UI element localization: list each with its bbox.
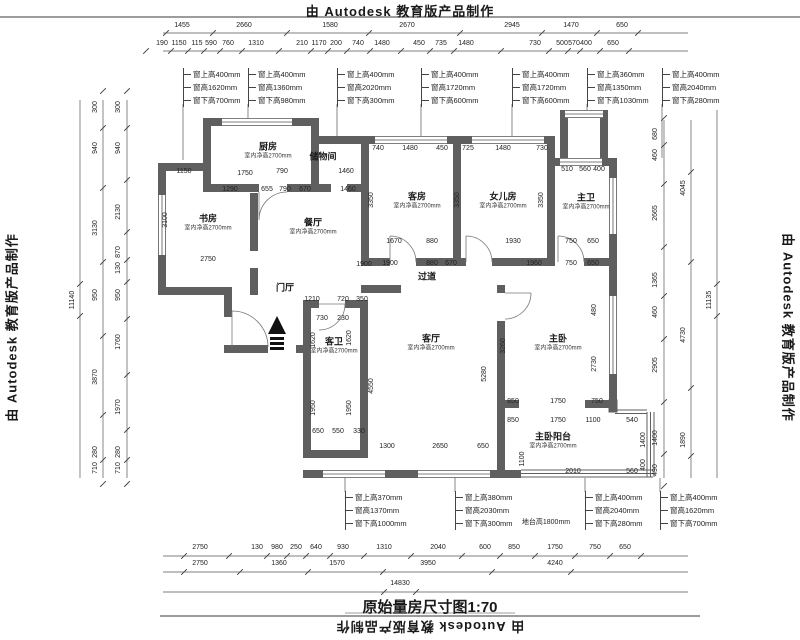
dim-label: 1300 <box>379 443 395 451</box>
stamp-left: 由 Autodesk 教育版产品制作 <box>2 178 21 478</box>
dim-label: 710 <box>115 462 123 474</box>
dim-label: 450 <box>436 145 448 153</box>
dim-label: 4730 <box>680 327 688 343</box>
dim-label: 740 <box>372 145 384 153</box>
room-label: 书房室内净高2700mm <box>184 215 231 234</box>
dim-label: 1290 <box>222 186 238 194</box>
dim-label: 725 <box>462 145 474 153</box>
dim-label: 210 <box>296 40 308 48</box>
entry-arrow <box>268 316 286 350</box>
dim-label: 650 <box>616 22 628 30</box>
dim-label: 655 <box>261 186 273 194</box>
dim-label: 650 <box>312 428 324 436</box>
window-callout: 窗上高400mm窗高2020mm窗下高300mm <box>337 68 395 107</box>
dim-label: 730 <box>529 40 541 48</box>
dim-label: 500 <box>556 40 568 48</box>
dim-label: 1950 <box>310 400 318 416</box>
dim-label: 3100 <box>162 212 170 228</box>
dim-label: 2750 <box>192 560 208 568</box>
dim-label: 1460 <box>338 168 354 176</box>
dim-label: 1750 <box>547 544 563 552</box>
dim-label: 3350 <box>538 192 546 208</box>
dim-label: 460 <box>652 306 660 318</box>
dim-label: 710 <box>92 462 100 474</box>
dim-label: 2040 <box>430 544 446 552</box>
dim-label: 5280 <box>481 366 489 382</box>
dim-label: 1150 <box>171 40 186 48</box>
dim-label: 115 <box>191 40 202 48</box>
dim-label: 750 <box>589 544 601 552</box>
window-callout: 窗上高380mm窗高2030mm窗下高300mm <box>455 491 513 530</box>
dim-label: 1365 <box>652 272 660 288</box>
window-callout: 窗上高400mm窗高1720mm窗下高600mm <box>421 68 479 107</box>
dim-label: 670 <box>299 186 311 194</box>
room-label: 女儿房室内净高2700mm <box>479 193 526 212</box>
dim-label: 1750 <box>550 417 566 425</box>
dim-label: 3130 <box>92 220 100 236</box>
dim-label: 880 <box>426 238 438 246</box>
dim-label: 790 <box>276 168 288 176</box>
dim-label: 730 <box>536 145 548 153</box>
window-callout: 窗上高400mm窗高2040mm窗下高280mm <box>662 68 720 107</box>
dim-label: 4045 <box>680 180 688 196</box>
dim-label: 560 <box>579 166 591 174</box>
dim-label: 1930 <box>505 238 521 246</box>
dim-label: 2905 <box>652 357 660 373</box>
dim-label: 4550 <box>368 378 376 394</box>
dim-label: 1480 <box>402 145 418 153</box>
dim-label: 930 <box>337 544 349 552</box>
dim-label: 720 <box>337 296 349 304</box>
dim-label: 280 <box>92 446 100 458</box>
dim-label: 2750 <box>192 544 208 552</box>
dim-label: 11135 <box>706 291 714 309</box>
dim-label: 2670 <box>399 22 415 30</box>
room-label: 门厅 <box>276 284 294 293</box>
floorplan-page: 由 Autodesk 教育版产品制作 由 Autodesk 教育版产品制作 由 … <box>0 0 800 640</box>
window-callout: 窗上高370mm窗高1370mm窗下高1000mm <box>345 491 407 530</box>
dim-label: 740 <box>352 40 364 48</box>
dim-label: 450 <box>413 40 425 48</box>
room-label: 厨房室内净高2700mm <box>244 143 291 162</box>
dim-label: 130 <box>115 262 123 274</box>
dim-label: 880 <box>426 260 438 268</box>
dim-label: 1400 <box>652 430 660 446</box>
dim-label: 940 <box>92 142 100 154</box>
dim-label: 300 <box>115 101 123 113</box>
dim-label: 3870 <box>92 369 100 385</box>
dim-label: 230 <box>337 315 349 323</box>
dim-label: 地台高1800mm <box>522 519 570 527</box>
dim-label: 1900 <box>356 261 372 269</box>
dim-label: 750 <box>591 398 603 406</box>
dim-label: 550 <box>332 428 344 436</box>
dim-label: 650 <box>607 40 619 48</box>
dim-label: 980 <box>271 544 283 552</box>
window-callout: 窗上高400mm窗高1620mm窗下高700mm <box>660 491 718 530</box>
dim-label: 730 <box>316 315 328 323</box>
window-callout: 窗上高400mm窗高1720mm窗下高600mm <box>512 68 570 107</box>
dim-label: 950 <box>92 289 100 301</box>
dim-label: 1970 <box>115 399 123 415</box>
dim-label: 760 <box>222 40 234 48</box>
room-label: 主卧阳台室内净高2700mm <box>529 433 576 452</box>
dim-label: 850 <box>508 544 520 552</box>
walls <box>158 110 617 478</box>
dim-label: 1750 <box>550 398 566 406</box>
dim-label: 670 <box>445 260 457 268</box>
room-label: 客卫室内净高2700mm <box>310 338 357 357</box>
dim-label: 1360 <box>271 560 287 568</box>
dim-label: 4240 <box>547 560 563 568</box>
dim-label: 11140 <box>69 291 77 309</box>
window-callout: 窗上高400mm窗高1620mm窗下高700mm <box>183 68 241 107</box>
dim-label: 3260 <box>500 338 508 354</box>
dim-label: 510 <box>561 166 573 174</box>
dim-label: 130 <box>251 544 263 552</box>
stamp-right: 由 Autodesk 教育版产品制作 <box>780 178 799 478</box>
dim-label: 200 <box>330 40 342 48</box>
dim-label: 1580 <box>322 22 338 30</box>
dim-label: 850 <box>507 398 519 406</box>
dim-label: 1470 <box>563 22 579 30</box>
room-label: 主卫室内净高2700mm <box>562 194 609 213</box>
room-label: 过道 <box>418 273 436 282</box>
dim-label: 1960 <box>526 260 542 268</box>
stamp-top: 由 Autodesk 教育版产品制作 <box>0 1 800 20</box>
dim-label: 1480 <box>458 40 474 48</box>
dim-label: 1100 <box>519 451 527 466</box>
dim-label: 1480 <box>495 145 511 153</box>
door-swings <box>232 192 584 347</box>
dim-label: 14830 <box>390 580 409 588</box>
window-callout: 窗上高400mm窗高1360mm窗下高980mm <box>248 68 306 107</box>
dim-label: 560 <box>626 468 638 476</box>
dim-label: 1570 <box>329 560 345 568</box>
dim-label: 650 <box>619 544 631 552</box>
dim-label: 400 <box>593 166 605 174</box>
dim-label: 1750 <box>237 170 253 178</box>
dim-label: 2010 <box>565 468 581 476</box>
room-label: 客房室内净高2700mm <box>393 193 440 212</box>
dim-label: 480 <box>591 304 599 316</box>
dim-label: 735 <box>435 40 447 48</box>
dim-label: 650 <box>587 238 599 246</box>
dim-label: 190 <box>156 40 168 48</box>
dim-label: 280 <box>115 446 123 458</box>
dim-label: 940 <box>115 142 123 154</box>
window-callout: 窗上高400mm窗高2040mm窗下高280mm <box>585 491 643 530</box>
dim-label: 590 <box>205 40 217 48</box>
dim-label: 540 <box>626 417 638 425</box>
stamp-bottom: 由 Autodesk 教育版产品制作 <box>280 618 580 637</box>
dim-label: 400 <box>640 459 648 471</box>
room-label: 主卧室内净高2700mm <box>534 335 581 354</box>
dim-label: 1400 <box>640 432 648 448</box>
dim-label: 850 <box>507 417 519 425</box>
dim-label: 640 <box>310 544 322 552</box>
dim-label: 680 <box>652 128 660 140</box>
dim-label: 600 <box>479 544 491 552</box>
dim-label: 650 <box>587 260 599 268</box>
dim-label: 2660 <box>236 22 252 30</box>
dim-label: 750 <box>565 238 577 246</box>
dim-label: 1100 <box>585 417 600 425</box>
dim-label: 3350 <box>368 192 376 208</box>
dim-label: 2945 <box>504 22 520 30</box>
dim-label: 2665 <box>652 205 660 221</box>
dim-label: 790 <box>279 186 291 194</box>
dim-label: 750 <box>565 260 577 268</box>
room-label: 客厅室内净高2700mm <box>407 335 454 354</box>
dim-label: 250 <box>290 544 302 552</box>
dim-label: 1900 <box>382 260 398 268</box>
window-callout: 窗上高360mm窗高1350mm窗下高1030mm <box>587 68 649 107</box>
dim-label: 1890 <box>680 432 688 448</box>
dim-label: 3350 <box>454 192 462 208</box>
room-label: 餐厅室内净高2700mm <box>289 219 336 238</box>
dim-label: 2650 <box>432 443 448 451</box>
dim-label: 1455 <box>174 22 190 30</box>
dim-label: 330 <box>353 428 365 436</box>
dim-label: 870 <box>115 246 123 258</box>
dim-label: 2750 <box>200 256 216 264</box>
dim-label: 490 <box>652 464 660 476</box>
dim-label: 460 <box>652 149 660 161</box>
dim-label: 1460 <box>340 186 356 194</box>
dim-label: 1670 <box>386 238 402 246</box>
dim-label: 1310 <box>248 40 264 48</box>
dim-label: 1150 <box>176 168 191 176</box>
dim-label: 1950 <box>346 400 354 416</box>
drawing-title: 原始量房尺寸图1:70 <box>160 596 700 617</box>
room-label: 储物间 <box>309 153 336 162</box>
dim-label: 650 <box>477 443 489 451</box>
dim-label: 1210 <box>304 296 320 304</box>
dim-label: 950 <box>115 289 123 301</box>
dim-label: 1170 <box>311 40 326 48</box>
dim-label: 300 <box>92 101 100 113</box>
dim-label: 1760 <box>115 334 123 350</box>
dim-label: 3950 <box>420 560 436 568</box>
dim-label: 350 <box>356 296 368 304</box>
dim-label: 2130 <box>115 204 123 220</box>
dim-label: 1480 <box>374 40 390 48</box>
dim-label: 2730 <box>591 356 599 372</box>
dim-label: 1310 <box>376 544 392 552</box>
